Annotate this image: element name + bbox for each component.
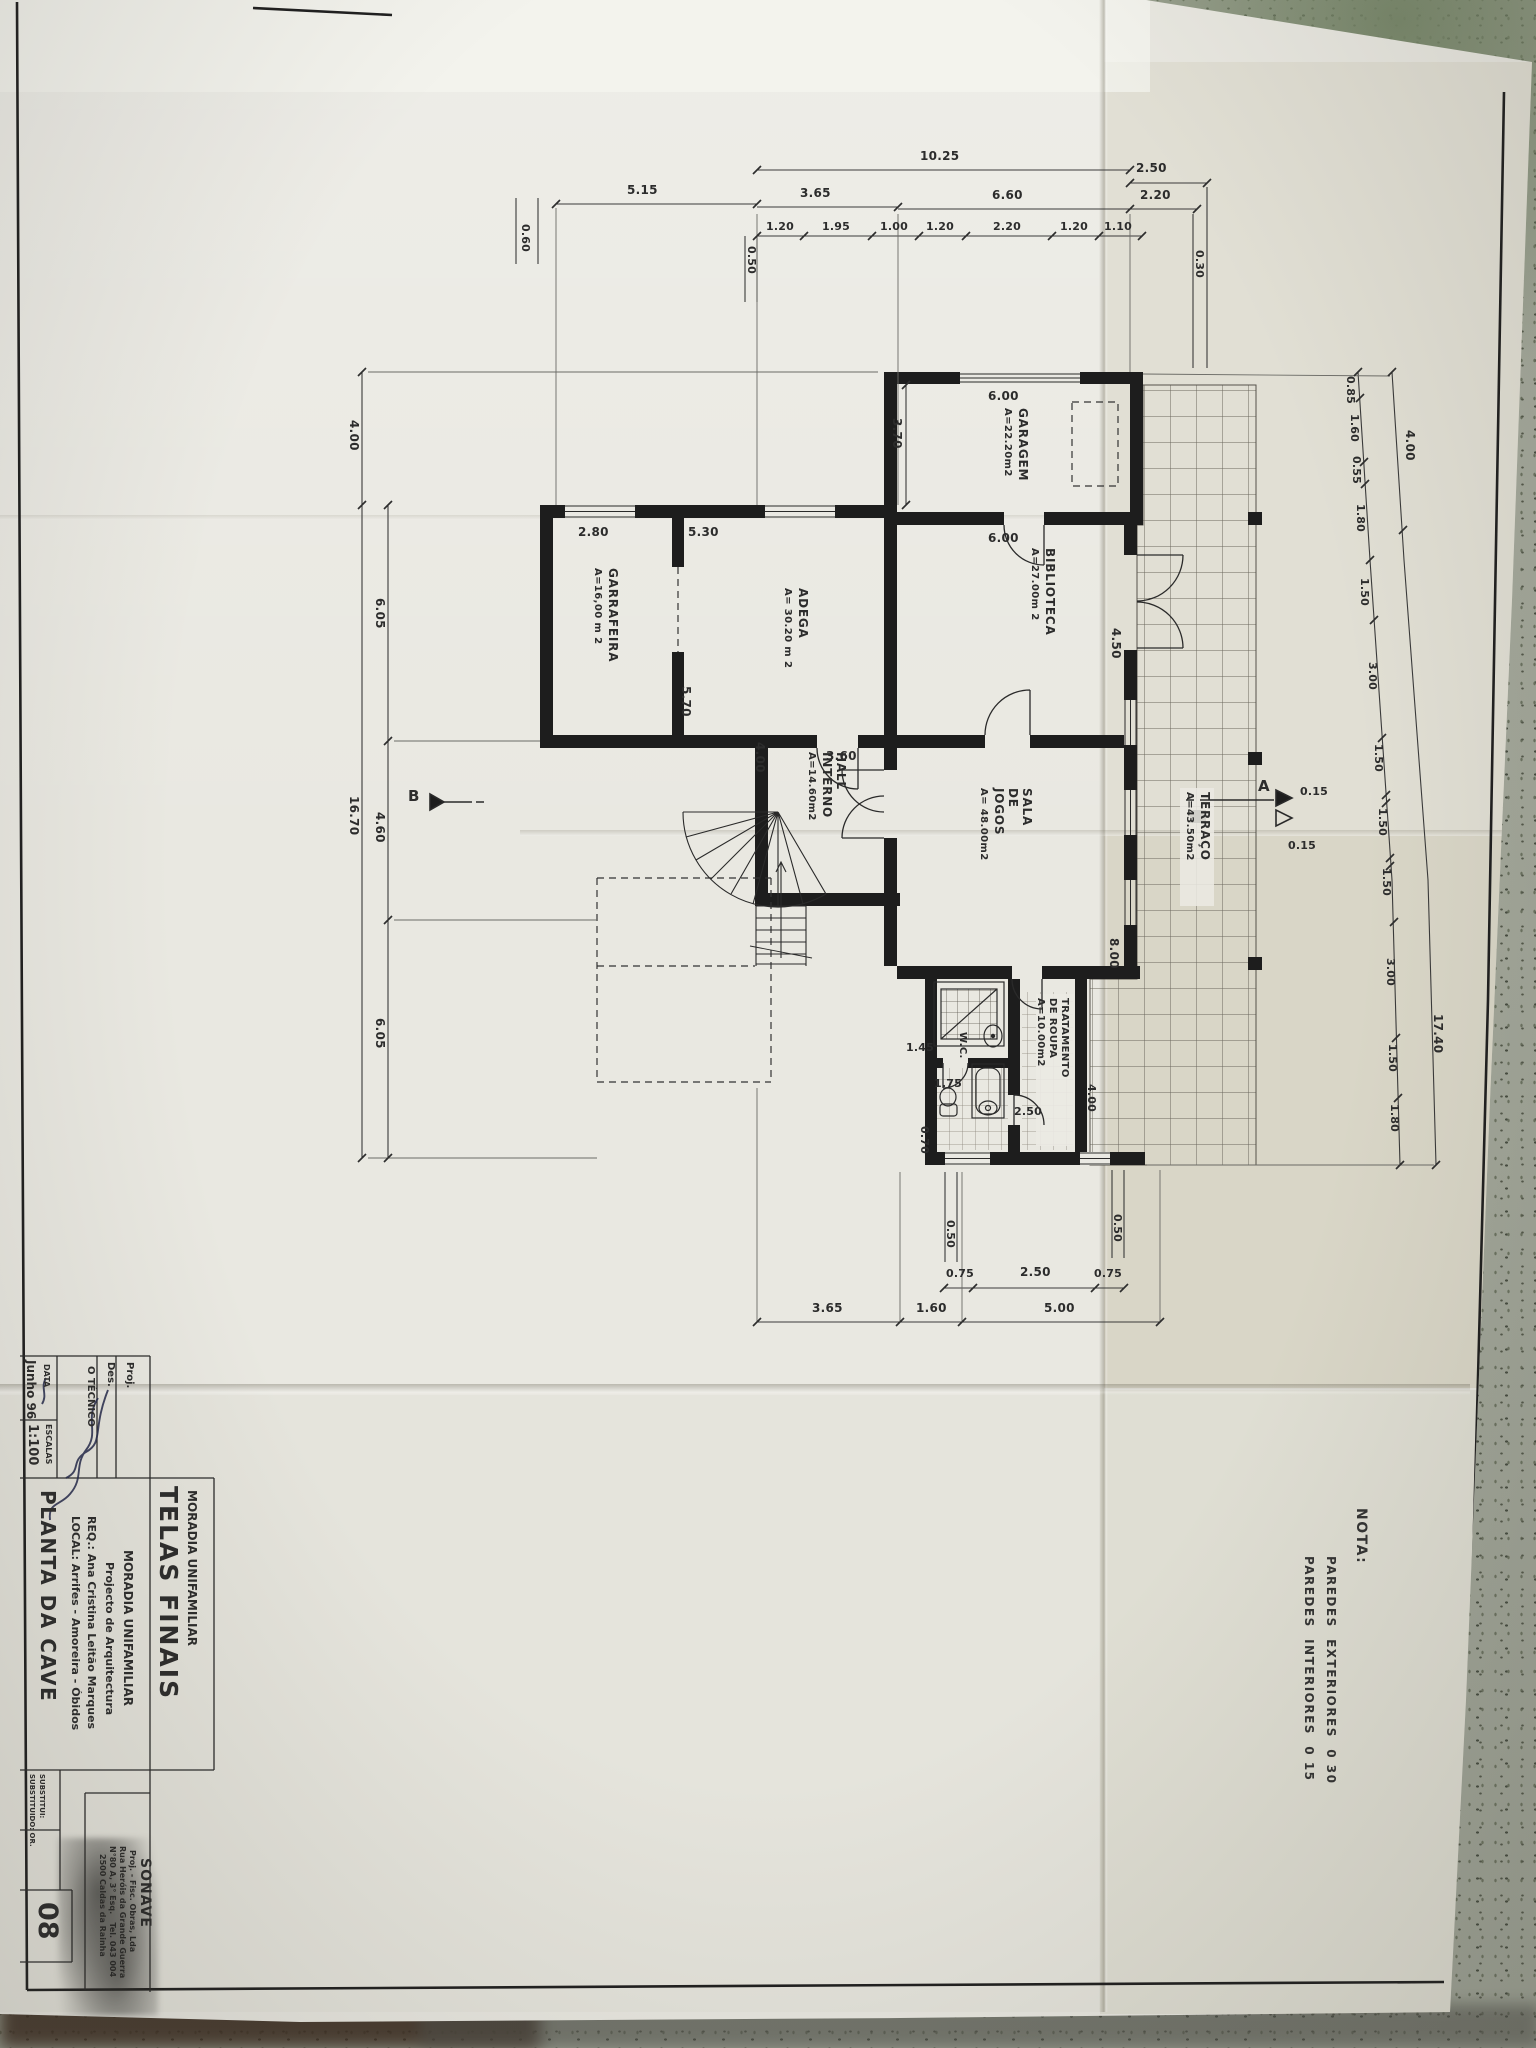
dim: 4.00 [1085,1084,1097,1112]
dim: 5.30 [688,526,719,539]
dim: 5.15 [627,184,658,197]
titleblock-escalas-value: 1:100 [25,1424,39,1465]
dim: 10.25 [920,150,959,163]
titleblock-project-name: MORADIA UNIFAMILIAR [121,1550,134,1706]
dim: 2.50 [1020,1266,1051,1279]
room-name: TERRAÇO [1198,792,1212,861]
dim: 1.50 [1386,1044,1398,1072]
dim: 1.95 [822,221,850,233]
dim: 4.60 [373,812,386,843]
dim: 6.05 [373,1018,386,1049]
room-label-biblioteca: BIBLIOTECAA=27.00m 2 [1028,548,1057,636]
room-name: SALA DE JOGOS [992,788,1034,835]
dim: 3.70 [890,418,903,449]
dim: 5.00 [1044,1302,1075,1315]
room-area: A=27.00m 2 [1029,548,1040,621]
dim: 2.20 [993,221,1021,233]
dim: 0.55 [1350,456,1362,484]
dim: 0.75 [946,1268,974,1280]
room-area: A= 48.00m2 [978,788,989,861]
dim: 0.60 [519,224,531,252]
section-marker-a: A [1258,778,1270,794]
room-area: A=16,00 m 2 [592,568,603,645]
dim: 0.85 [1344,376,1356,404]
dim: 17.40 [1431,1014,1444,1053]
room-label-sala: SALA DE JOGOSA= 48.00m2 [977,788,1034,861]
dim: 3.65 [812,1302,843,1315]
dim: 1.60 [916,1302,947,1315]
dim: 2.20 [1140,189,1171,202]
room-area: A=22.20m2 [1002,408,1013,477]
dim: 6.00 [988,532,1019,545]
titleblock-header-subtitle: MORADIA UNIFAMILIAR [185,1490,198,1646]
room-name: GARRAFEIRA [606,568,620,662]
titleblock-header-title: TELAS FINAIS [155,1486,182,1700]
dim: 1.50 [1380,868,1392,896]
dim: 2.50 [1136,162,1167,175]
dim: 1.20 [766,221,794,233]
dim: 1.45 [906,1042,934,1054]
titleblock-data-value: Junho 96 [24,1360,37,1419]
dim: 2.50 [1014,1106,1042,1118]
dim: 6.00 [988,390,1019,403]
titleblock-des-label: Des. [104,1362,115,1387]
ink-stamp-smudge [58,1838,158,2016]
dim: 0.70 [918,1126,930,1154]
dim: 1.20 [926,221,954,233]
dim: 0.50 [745,246,757,274]
dim: 3.00 [1384,958,1396,986]
dim: 1.60 [1348,414,1360,442]
section-marker-b: B [408,788,420,804]
room-label-adega: ADEGAA= 30.20 m 2 [781,588,810,668]
room-label-garagem: GARAGEMA=22.20m2 [1001,408,1030,481]
titleblock-local: LOCAL: Arrifes - Amoreira - Óbidos [69,1516,81,1730]
dim: 0.75 [1094,1268,1122,1280]
dim: 8.00 [1107,938,1120,969]
room-name: ADEGA [796,588,810,639]
titleblock-substituido-label: SUBSTITUIDO: OR. [27,1774,35,1847]
room-area: A= 30.20 m 2 [782,588,793,668]
dim: 4.00 [753,742,766,773]
titleblock-sheet-title: PLANTA DA CAVE [36,1490,58,1702]
dim: 3.00 [1366,662,1378,690]
titleblock-proj-label: Proj. [123,1362,134,1388]
dim: 4.00 [347,420,360,451]
photo-of-floor-plan: GARAGEMA=22.20m2 BIBLIOTECAA=27.00m 2 AD… [0,0,1536,2048]
titleblock-project-type: Projecto de Arquitectura [103,1562,115,1715]
note-line-exteriores: PAREDES EXTERIORES 0 30 [1324,1556,1337,1784]
titleblock-tecnico-label: O TÉCNICO [84,1366,95,1427]
dim: 6.05 [373,598,386,629]
dim: 1.10 [1104,221,1132,233]
dim: 2.80 [578,526,609,539]
room-name: TRATAMENTO DE ROUPA [1047,998,1070,1078]
dim: 1.50 [1358,578,1370,606]
dim: 1.50 [1372,744,1384,772]
room-area: A=43.50m2 [1184,792,1195,861]
titleblock-req: REQ.: Ana Cristina Leitão Marques [85,1516,97,1729]
titleblock-escalas-label: ESCALAS [43,1424,52,1464]
dim: 3.60 [826,750,857,763]
drawing-sheet: GARAGEMA=22.20m2 BIBLIOTECAA=27.00m 2 AD… [0,0,1536,2048]
dim: 0.15 [1288,840,1316,852]
room-area: A=10.00m2 [1035,998,1046,1067]
dim: 5.70 [679,686,692,717]
room-name: GARAGEM [1016,408,1030,481]
dim: 0.30 [1193,250,1205,278]
tile-hatch [937,385,1262,1165]
dim: 1.00 [880,221,908,233]
stairs [683,812,826,966]
room-area: A=14.60m2 [806,752,817,821]
dim: 4.50 [1109,628,1122,659]
room-label-wc: W.C. [956,1032,968,1059]
dim: 1.20 [1060,221,1088,233]
room-label-garrafeira: GARRAFEIRAA=16,00 m 2 [591,568,620,662]
dim: 1.80 [1388,1104,1400,1132]
titleblock-data-label: DATA [41,1364,50,1387]
dim: 1.80 [1354,504,1366,532]
dim: 3.65 [800,187,831,200]
dim: 4.00 [1403,430,1416,461]
dim: 1.75 [934,1078,962,1090]
room-name: BIBLIOTECA [1043,548,1057,636]
dim: 0.15 [1300,786,1328,798]
dim: 0.50 [1111,1214,1123,1242]
note-title: NOTA: [1353,1508,1368,1564]
titleblock-substitui-label: SUBSTITUI: [37,1774,45,1818]
dim: 1.50 [1376,808,1388,836]
dim: 0.50 [944,1220,956,1248]
room-label-terraco: TERRAÇOA=43.50m2 [1183,792,1212,861]
dim: 16.70 [347,796,360,835]
room-label-tratamento: TRATAMENTO DE ROUPAA=10.00m2 [1034,998,1070,1078]
sheet-frame [17,2,1504,1990]
note-line-interiores: PAREDES INTERIORES 0 15 [1302,1556,1315,1782]
dim: 6.60 [992,189,1023,202]
